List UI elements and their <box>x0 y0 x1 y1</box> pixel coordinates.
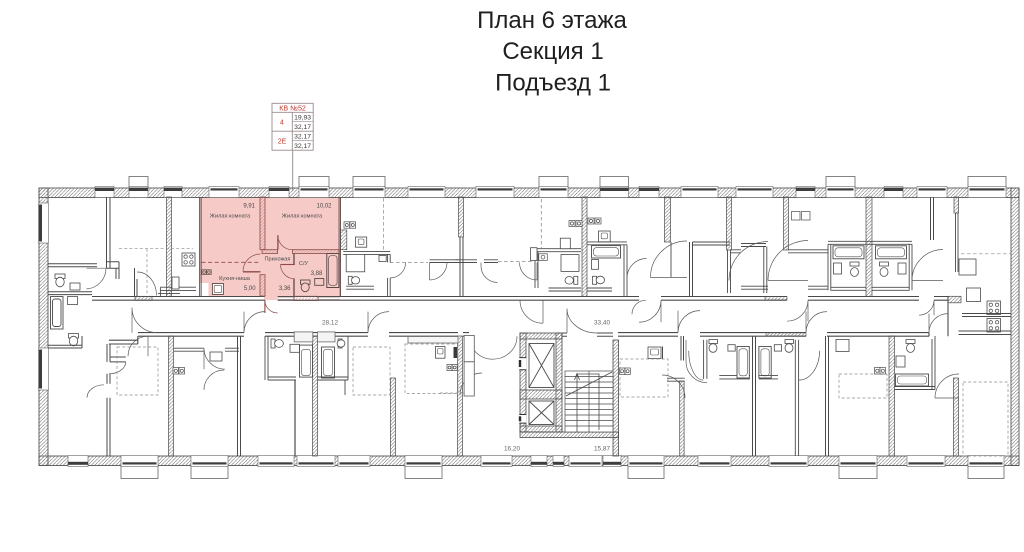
svg-text:5,00: 5,00 <box>244 286 256 292</box>
svg-text:32,17: 32,17 <box>294 124 311 131</box>
svg-text:9,91: 9,91 <box>243 203 255 209</box>
svg-text:Прихожая: Прихожая <box>265 256 291 262</box>
svg-text:План 6 этажа: План 6 этажа <box>477 7 627 34</box>
svg-text:3,88: 3,88 <box>311 271 323 277</box>
svg-text:3,36: 3,36 <box>279 286 291 292</box>
svg-text:28,12: 28,12 <box>322 320 338 327</box>
svg-text:Подъезд 1: Подъезд 1 <box>495 69 611 96</box>
svg-text:4: 4 <box>280 120 284 127</box>
svg-text:Жилая комната: Жилая комната <box>282 214 323 220</box>
svg-text:33,40: 33,40 <box>594 320 610 327</box>
svg-text:16,20: 16,20 <box>504 446 520 453</box>
svg-text:19,93: 19,93 <box>294 114 311 121</box>
svg-text:10,02: 10,02 <box>316 203 332 209</box>
svg-text:Жилая комната: Жилая комната <box>210 214 251 220</box>
svg-text:32,17: 32,17 <box>294 143 311 150</box>
svg-text:15,87: 15,87 <box>594 446 610 453</box>
svg-text:2Е: 2Е <box>278 139 287 146</box>
svg-text:Кухня-ниша: Кухня-ниша <box>219 276 251 282</box>
svg-text:Секция 1: Секция 1 <box>502 38 603 65</box>
svg-text:С/У: С/У <box>299 261 309 267</box>
svg-text:32,17: 32,17 <box>294 134 311 141</box>
svg-text:КВ №52: КВ №52 <box>279 104 306 113</box>
